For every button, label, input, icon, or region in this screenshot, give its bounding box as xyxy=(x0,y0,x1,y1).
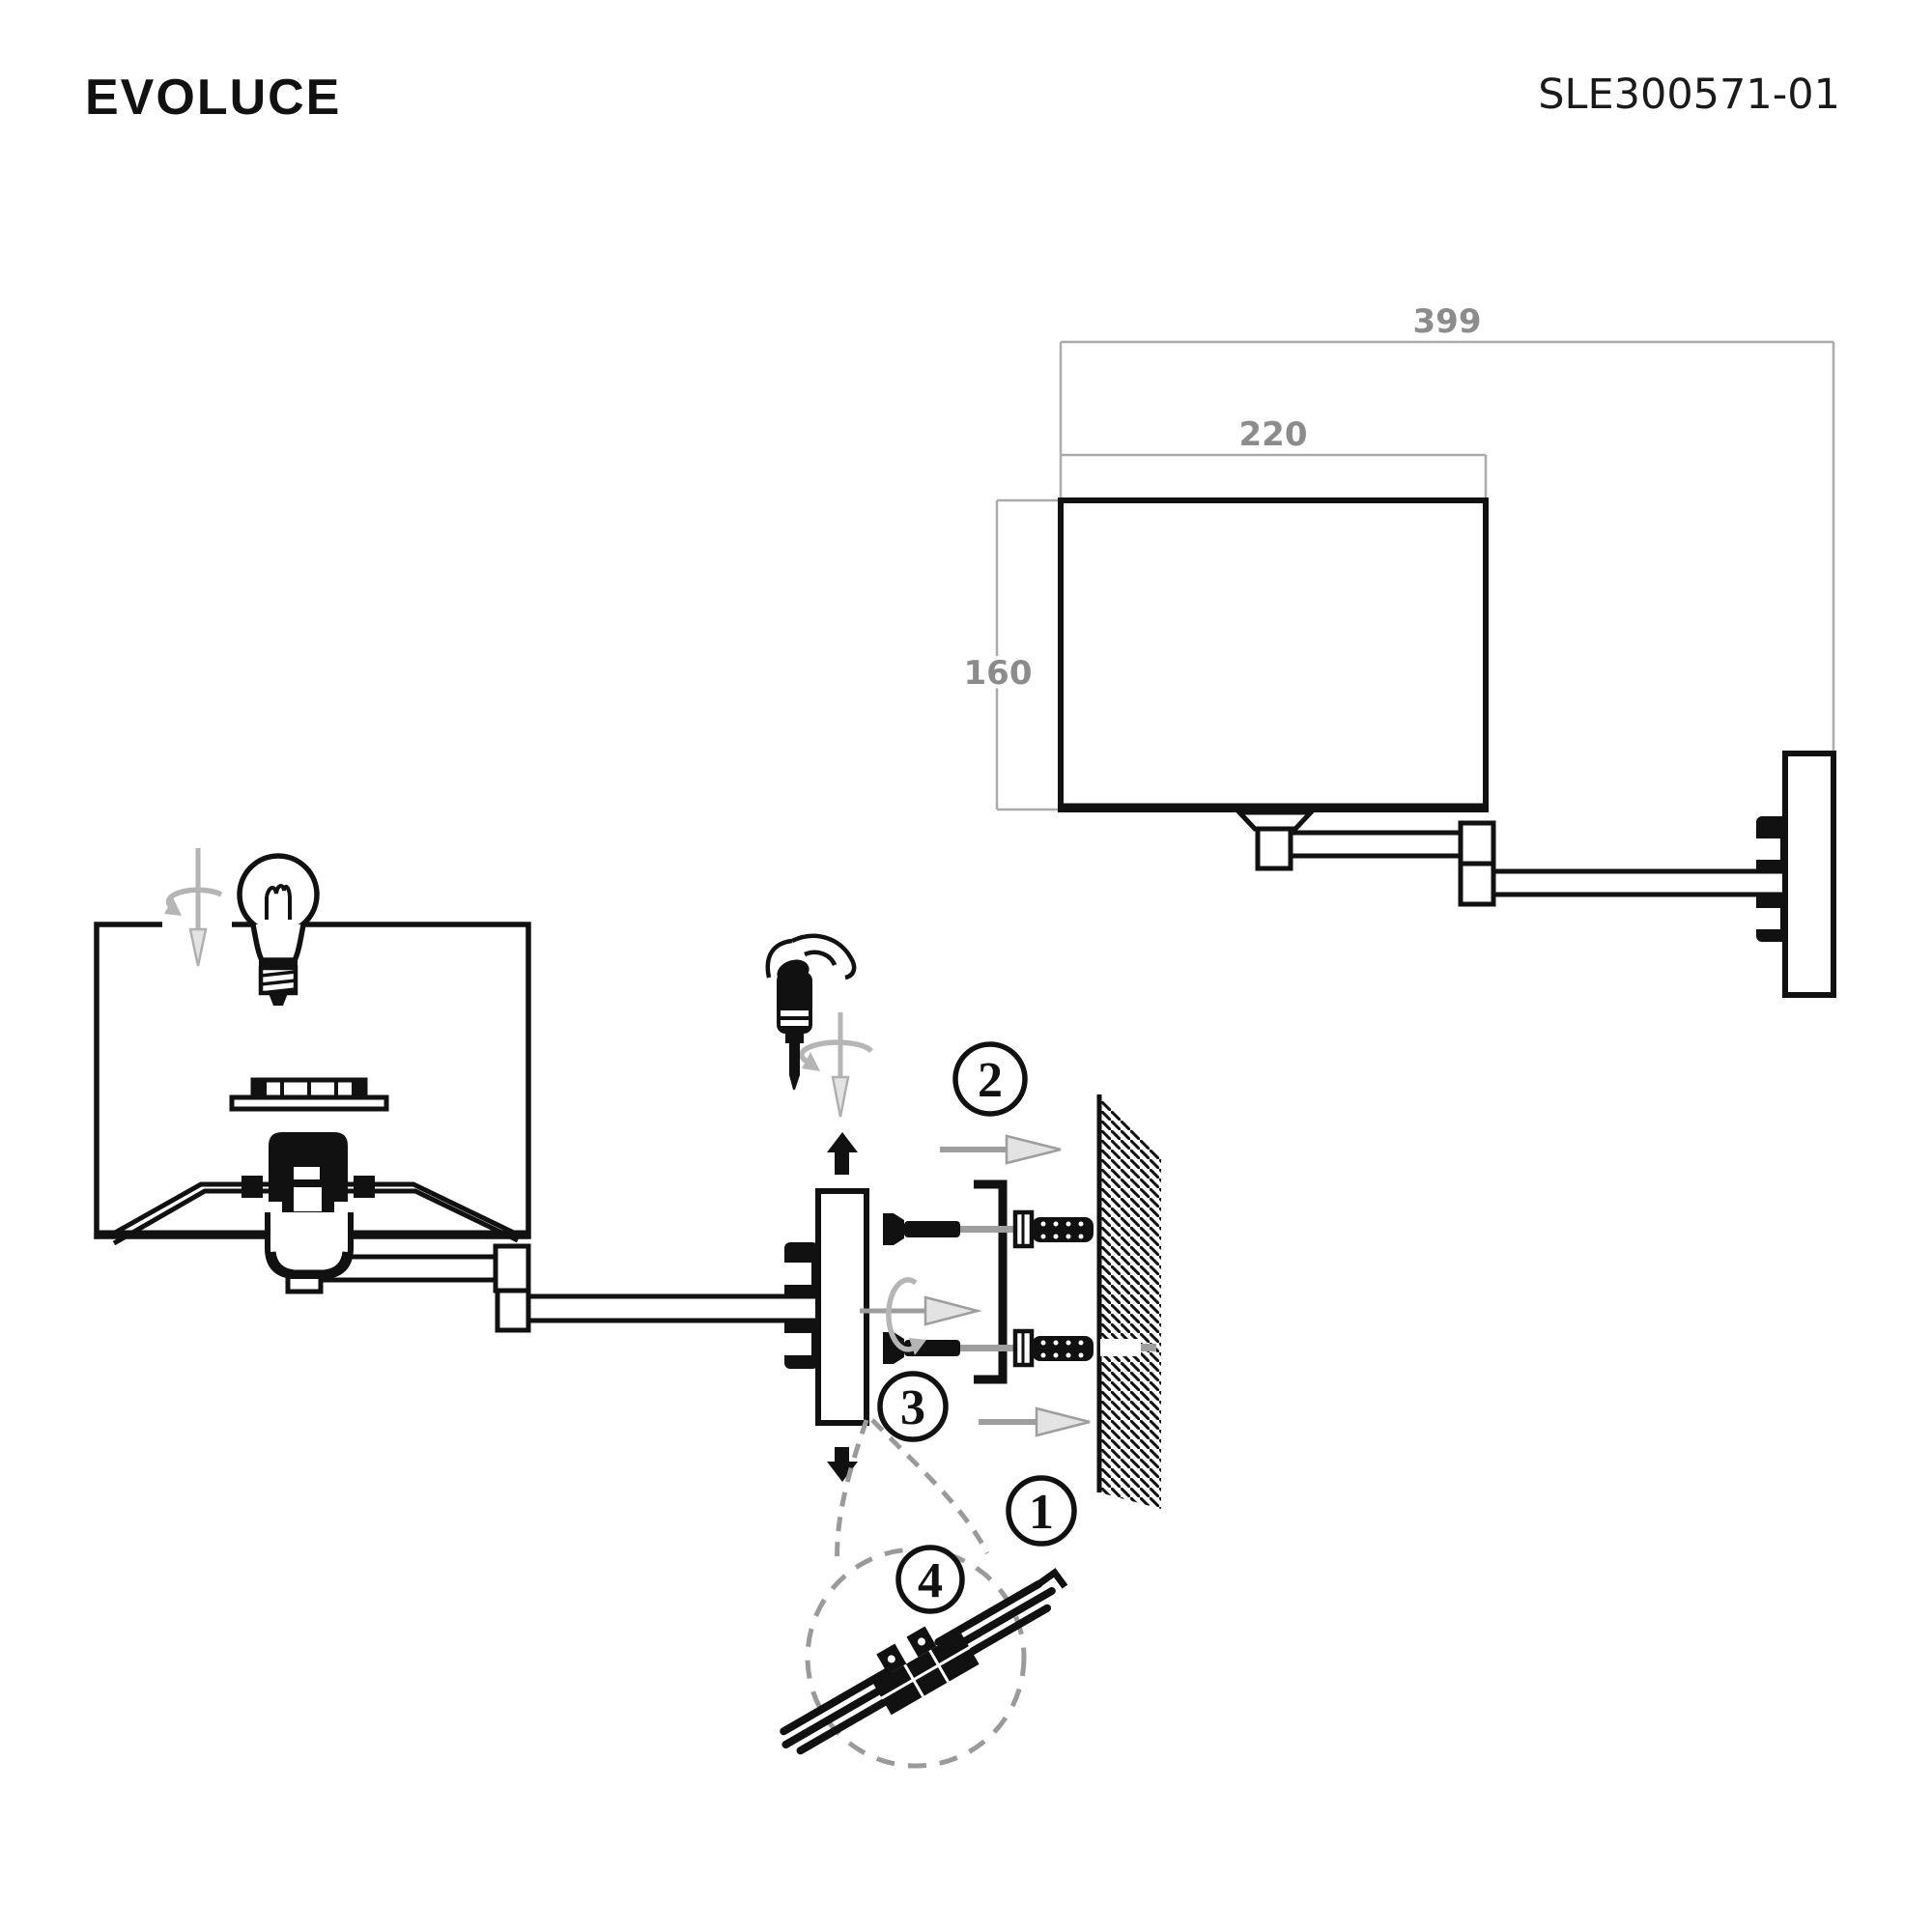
socket-assembly xyxy=(269,1132,348,1214)
bulb-glass xyxy=(240,856,317,933)
collar-notch-bottom xyxy=(1756,908,1780,929)
wall-anchor-bottom xyxy=(1015,1331,1094,1365)
product-code: SLE300571-01 xyxy=(1538,71,1840,119)
support-nub-left xyxy=(241,1176,263,1198)
step-badge-2: 2 xyxy=(955,1044,1025,1114)
arrow-right-icon xyxy=(925,1297,978,1324)
socket-slot-1 xyxy=(294,1167,320,1179)
collar-notch-top xyxy=(1756,838,1780,860)
step-number: 3 xyxy=(900,1380,925,1435)
lamp-front-view xyxy=(97,848,528,1330)
screw-thread xyxy=(960,1345,1018,1351)
dim-label-width: 220 xyxy=(1239,415,1308,454)
arrow-down-icon xyxy=(827,1447,858,1482)
wall-anchor-icon xyxy=(1032,1336,1094,1361)
step-number: 1 xyxy=(1029,1485,1054,1540)
strip-tab-left xyxy=(254,1082,267,1097)
wall xyxy=(1099,1094,1161,1509)
brand-logo: EVOLUCE xyxy=(85,70,341,126)
dimension-side-view: 399 220 160 xyxy=(964,302,1833,995)
instruction-diagram: EVOLUCE SLE300571-01 399 220 160 xyxy=(0,0,1932,1932)
handle-stripe xyxy=(781,1020,809,1026)
step-badges: 2 3 1 4 xyxy=(880,1044,1074,1611)
screw-shank xyxy=(904,1221,960,1237)
step-badge-4: 4 xyxy=(898,1548,962,1611)
wall-anchor-icon xyxy=(1032,1217,1094,1242)
dim-label-total: 399 xyxy=(1413,302,1482,341)
screw-top xyxy=(883,1213,1018,1245)
screwdriver-ferrule xyxy=(785,1034,804,1043)
installation-view xyxy=(528,936,1161,1509)
drilled-hole xyxy=(1100,1339,1141,1356)
shade-stem xyxy=(1239,812,1311,829)
mounting-strip xyxy=(232,1080,386,1109)
screw-thread xyxy=(960,1226,1018,1233)
step-badge-1: 1 xyxy=(1009,1478,1074,1544)
step1-arrow xyxy=(979,1408,1090,1435)
canopy-notch-bottom xyxy=(784,1333,811,1355)
arm-joint-lower-front xyxy=(497,1291,528,1330)
arrow-up-icon xyxy=(827,1132,858,1175)
wall-plate-side xyxy=(1785,753,1833,995)
lamp-side-view xyxy=(1061,500,1833,995)
rotate-symbol-shade xyxy=(162,848,232,972)
screwdriver-shaft xyxy=(789,1043,800,1075)
shade-side xyxy=(1061,500,1486,810)
dim-label-height: 160 xyxy=(964,654,1033,693)
arm-bar-2 xyxy=(1493,871,1785,895)
arm-bar-1 xyxy=(1291,833,1461,856)
screwdriver-tip xyxy=(789,1075,800,1090)
step2-arrow xyxy=(940,1136,1061,1163)
anchor-tip-in-hole xyxy=(1141,1344,1156,1351)
step-number: 2 xyxy=(978,1053,1003,1108)
socket-slot-2 xyxy=(294,1187,322,1211)
dim-line-220 xyxy=(1061,455,1486,499)
screw-head-icon xyxy=(883,1213,904,1245)
arrow-right-icon xyxy=(1007,1136,1061,1163)
strip-tab-right xyxy=(352,1082,364,1097)
leader-line-right xyxy=(872,1420,987,1553)
support-nub-right xyxy=(354,1176,375,1198)
wall-anchor-top xyxy=(1015,1212,1094,1246)
leader-line-left xyxy=(838,1420,867,1567)
arm-joint-2-upper xyxy=(1461,823,1493,864)
step-badge-3: 3 xyxy=(880,1374,946,1439)
handle-stripe xyxy=(781,1010,809,1016)
arrow-right-icon xyxy=(1037,1408,1090,1435)
arm-joint-1 xyxy=(1258,829,1291,868)
rotate-symbol-plate-top xyxy=(802,1012,871,1117)
step-number: 4 xyxy=(918,1553,943,1608)
wall-plate-canopy xyxy=(818,1191,867,1423)
wall-hatch xyxy=(1099,1094,1161,1509)
canopy-notch-top xyxy=(784,1263,811,1285)
arm-bar-2-front xyxy=(528,1296,818,1321)
arm-joint-upper-front xyxy=(496,1246,528,1291)
arm-joint-2-lower xyxy=(1461,864,1493,904)
screw-cone xyxy=(833,1077,848,1117)
bulb-neck xyxy=(253,924,303,960)
